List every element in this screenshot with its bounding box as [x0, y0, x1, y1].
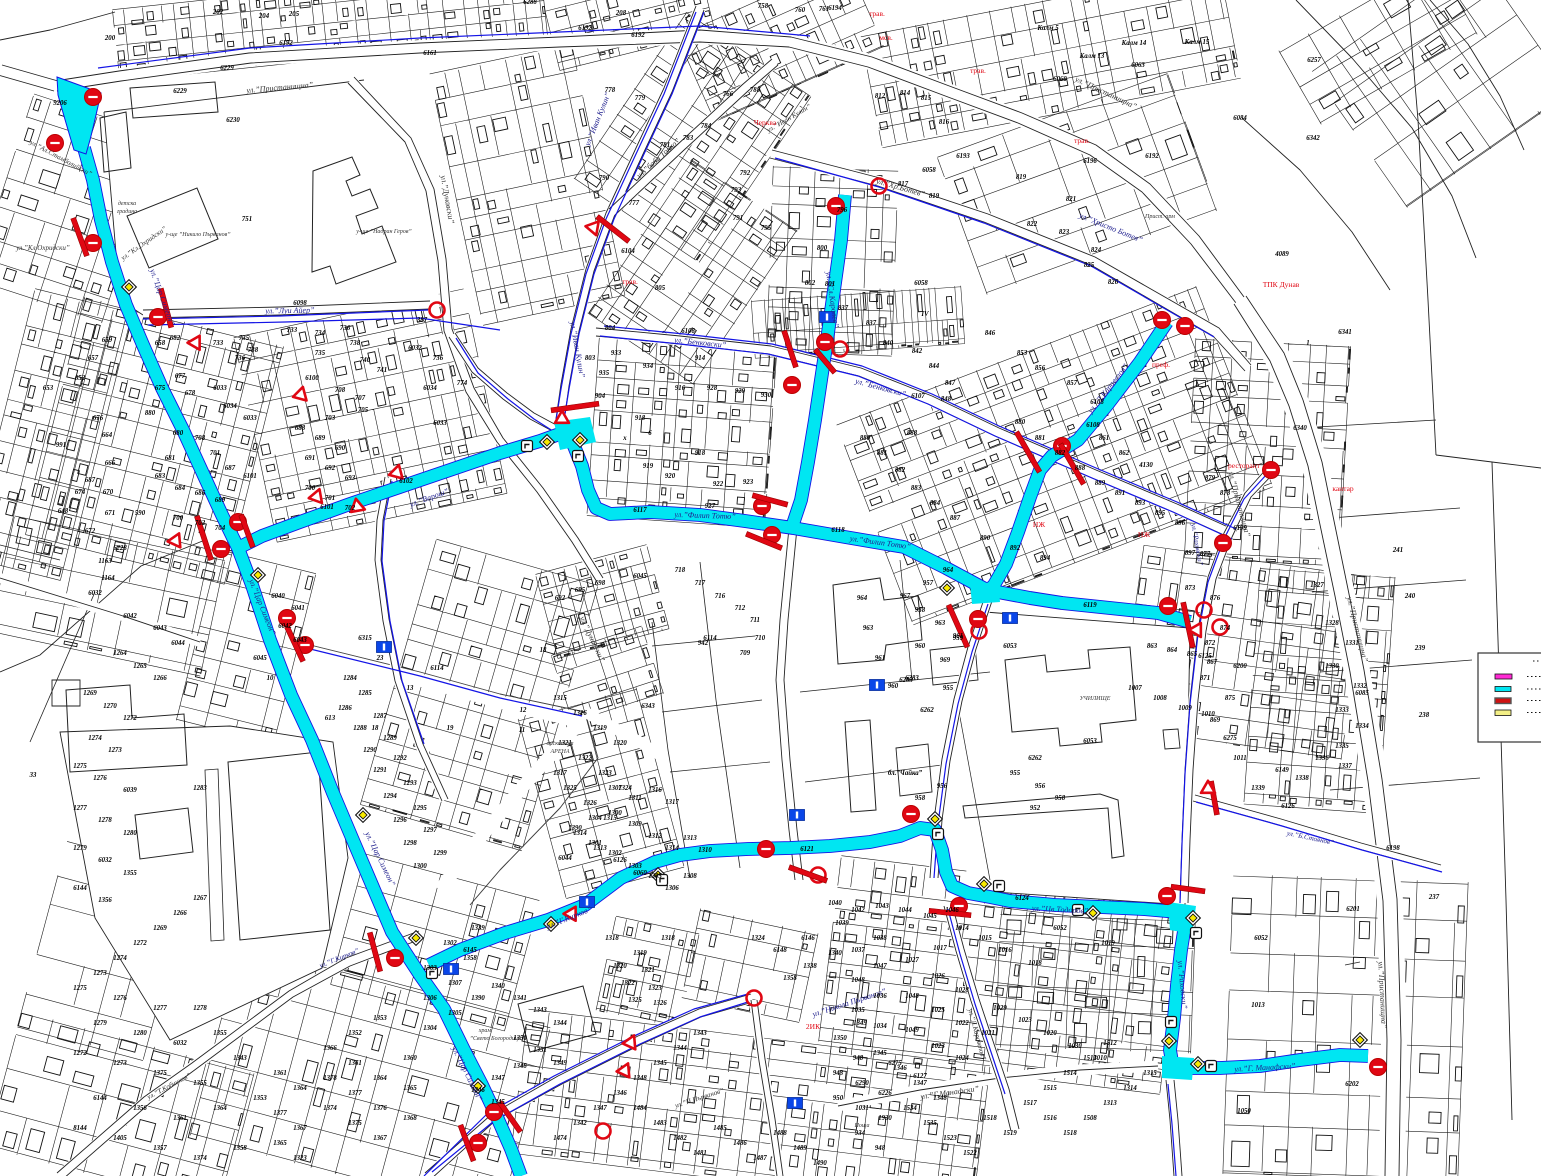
svg-text:1323: 1323 [293, 1155, 307, 1162]
svg-text:701: 701 [210, 450, 220, 457]
svg-text:x: x [622, 435, 627, 442]
svg-text:6161: 6161 [423, 50, 437, 57]
svg-text:1488: 1488 [773, 1130, 787, 1137]
svg-text:4130: 4130 [1138, 462, 1153, 469]
svg-text:671: 671 [105, 510, 115, 517]
svg-text:6343: 6343 [641, 703, 655, 710]
svg-text:1514: 1514 [1063, 1070, 1077, 1077]
svg-text:659: 659 [102, 337, 113, 344]
svg-text:1030: 1030 [1068, 1043, 1082, 1050]
svg-text:1046: 1046 [945, 907, 959, 914]
svg-text:1490: 1490 [813, 1160, 827, 1167]
svg-text:819: 819 [1016, 174, 1027, 181]
svg-text:678: 678 [185, 390, 196, 397]
svg-text:1029: 1029 [993, 1005, 1007, 1012]
svg-text:1302: 1302 [608, 850, 622, 857]
svg-text:927: 927 [705, 503, 716, 510]
svg-text:1279: 1279 [73, 845, 87, 852]
svg-text:1318: 1318 [605, 935, 619, 942]
svg-text:778: 778 [605, 87, 616, 94]
svg-text:955: 955 [1010, 770, 1021, 777]
svg-text:709: 709 [740, 650, 751, 657]
svg-text:652: 652 [75, 375, 86, 382]
svg-text:1512: 1512 [1103, 1040, 1117, 1047]
svg-text:Калм 15: Калм 15 [1184, 39, 1210, 46]
svg-text:1163: 1163 [98, 558, 112, 565]
svg-text:6342: 6342 [1306, 135, 1320, 142]
svg-text:934: 934 [643, 363, 654, 370]
svg-text:751: 751 [242, 216, 252, 223]
svg-text:710: 710 [755, 635, 766, 642]
svg-text:942: 942 [698, 640, 709, 647]
svg-text:1390: 1390 [471, 995, 485, 1002]
svg-text:894: 894 [1040, 555, 1051, 562]
svg-text:934: 934 [855, 1130, 866, 1137]
svg-text:689: 689 [315, 435, 326, 442]
svg-text:6034: 6034 [423, 385, 437, 392]
svg-text:842: 842 [912, 348, 923, 355]
svg-text:6042: 6042 [278, 623, 292, 630]
svg-text:702: 702 [345, 505, 356, 512]
svg-text:955: 955 [943, 685, 954, 692]
svg-text:6340: 6340 [1293, 425, 1307, 432]
svg-text:1291: 1291 [373, 767, 387, 774]
svg-text:1390: 1390 [568, 825, 582, 832]
svg-text:1043: 1043 [875, 903, 889, 910]
svg-text:6192: 6192 [279, 40, 293, 47]
svg-text:1306: 1306 [665, 885, 679, 892]
svg-text:6275: 6275 [1223, 735, 1237, 742]
svg-text:690: 690 [335, 445, 346, 452]
svg-text:6033: 6033 [243, 415, 257, 422]
svg-text:687: 687 [225, 465, 236, 472]
svg-text:958: 958 [915, 607, 926, 614]
svg-text:1332: 1332 [1353, 683, 1367, 690]
svg-text:1314: 1314 [665, 845, 679, 852]
svg-text:6229: 6229 [220, 65, 234, 72]
svg-text:1322: 1322 [621, 980, 635, 987]
svg-text:792: 792 [740, 170, 751, 177]
svg-text:1044: 1044 [898, 907, 912, 914]
svg-text:1323: 1323 [648, 985, 662, 992]
svg-text:683: 683 [155, 473, 166, 480]
svg-text:1305: 1305 [648, 873, 662, 880]
svg-text:1336: 1336 [1315, 755, 1329, 762]
svg-text:1375: 1375 [153, 1070, 167, 1077]
svg-text:1: 1 [1306, 340, 1309, 347]
svg-text:736: 736 [433, 355, 444, 362]
svg-text:1025: 1025 [931, 1007, 945, 1014]
svg-text:707: 707 [355, 395, 366, 402]
svg-text:1274: 1274 [88, 735, 102, 742]
svg-text:856: 856 [1035, 365, 1046, 372]
svg-text:IV: IV [920, 311, 929, 318]
svg-text:681: 681 [165, 455, 175, 462]
svg-text:658: 658 [155, 340, 166, 347]
svg-text:1535: 1535 [923, 1120, 937, 1127]
svg-text:1026: 1026 [931, 973, 945, 980]
svg-text:1301: 1301 [588, 840, 602, 847]
svg-text:960: 960 [888, 683, 899, 690]
svg-text:796: 796 [837, 207, 848, 214]
svg-text:1302: 1302 [443, 940, 457, 947]
svg-text:6341: 6341 [1338, 329, 1352, 336]
svg-text:6230: 6230 [226, 117, 240, 124]
svg-text:675: 675 [155, 385, 166, 392]
svg-text:1009: 1009 [1178, 705, 1192, 712]
svg-text:800: 800 [817, 245, 828, 252]
svg-text:889: 889 [1095, 480, 1106, 487]
svg-text:1265: 1265 [133, 663, 147, 670]
svg-text:964: 964 [943, 567, 954, 574]
svg-text:795: 795 [761, 225, 772, 232]
svg-text:387: 387 [416, 317, 428, 324]
svg-text:1031: 1031 [855, 1105, 869, 1112]
svg-text:1276: 1276 [113, 995, 127, 1002]
svg-text:890: 890 [980, 535, 991, 542]
svg-text:1326: 1326 [653, 1000, 667, 1007]
svg-text:880: 880 [1015, 419, 1026, 426]
svg-text:1292: 1292 [393, 755, 407, 762]
svg-text:676: 676 [93, 415, 104, 422]
svg-text:4089: 4089 [1274, 251, 1289, 258]
svg-text:6192: 6192 [578, 25, 592, 32]
svg-text:240: 240 [1404, 593, 1416, 600]
svg-text:823: 823 [1059, 229, 1070, 236]
svg-text:6124: 6124 [1015, 895, 1029, 902]
svg-text:815: 815 [921, 95, 932, 102]
svg-text:871: 871 [1200, 675, 1210, 682]
svg-text:758: 758 [758, 3, 769, 10]
svg-text:803: 803 [585, 355, 596, 362]
svg-text:1028: 1028 [955, 987, 969, 994]
svg-text:1374: 1374 [193, 1155, 207, 1162]
svg-text:11: 11 [519, 727, 525, 734]
svg-text:708: 708 [195, 435, 206, 442]
svg-text:872: 872 [1205, 640, 1216, 647]
svg-text:969: 969 [940, 657, 951, 664]
svg-text:1040: 1040 [828, 900, 842, 907]
svg-text:874: 874 [1220, 625, 1231, 632]
svg-text:1347: 1347 [593, 1105, 607, 1112]
svg-text:1481: 1481 [693, 1150, 707, 1157]
svg-text:1324: 1324 [751, 935, 765, 942]
svg-text:1275: 1275 [73, 763, 87, 770]
svg-text:1350: 1350 [513, 1035, 527, 1042]
svg-text:821: 821 [1066, 196, 1076, 203]
svg-text:1377: 1377 [273, 1110, 287, 1117]
svg-text:храм: храм [478, 1028, 492, 1034]
svg-text:1321: 1321 [641, 967, 655, 974]
svg-text:6033: 6033 [433, 420, 447, 427]
svg-text:18: 18 [372, 725, 379, 732]
svg-text:1277: 1277 [73, 805, 87, 812]
svg-text:1326: 1326 [583, 800, 597, 807]
svg-text:1344: 1344 [553, 1020, 567, 1027]
svg-text:1483: 1483 [653, 1120, 667, 1127]
svg-text:1365: 1365 [403, 1085, 417, 1092]
svg-text:НЖ: НЖ [1138, 530, 1150, 539]
svg-text:1322: 1322 [578, 755, 592, 762]
svg-text:826: 826 [1108, 279, 1119, 286]
svg-text:1013: 1013 [1251, 1002, 1265, 1009]
svg-text:1348: 1348 [513, 1063, 527, 1070]
svg-text:1273: 1273 [108, 747, 122, 754]
svg-text:880: 880 [860, 435, 871, 442]
svg-text:682: 682 [170, 335, 181, 342]
svg-text:684: 684 [175, 485, 186, 492]
svg-text:1036: 1036 [873, 993, 887, 1000]
svg-text:1019: 1019 [1101, 940, 1115, 947]
svg-text:718: 718 [675, 567, 686, 574]
svg-text:702: 702 [195, 520, 206, 527]
svg-text:6032: 6032 [408, 345, 422, 352]
svg-text:6101: 6101 [243, 473, 257, 480]
svg-text:837: 837 [866, 320, 877, 327]
svg-text:1350: 1350 [833, 1035, 847, 1042]
svg-text:1515: 1515 [1043, 1085, 1057, 1092]
svg-text:1311: 1311 [628, 795, 641, 802]
svg-text:734: 734 [315, 330, 326, 337]
svg-text:6262: 6262 [1028, 755, 1042, 762]
svg-text:1345: 1345 [873, 1050, 887, 1057]
svg-text:6315: 6315 [358, 635, 372, 642]
svg-text:1355: 1355 [123, 870, 137, 877]
svg-text:819: 819 [929, 193, 940, 200]
svg-text:6117: 6117 [633, 507, 647, 514]
svg-text:904: 904 [595, 393, 606, 400]
svg-text:1356: 1356 [98, 897, 112, 904]
svg-text:824: 824 [1091, 247, 1102, 254]
svg-text:812: 812 [875, 93, 886, 100]
svg-text:1357: 1357 [153, 1145, 167, 1152]
svg-text:1267: 1267 [193, 895, 207, 902]
svg-text:1297: 1297 [423, 827, 437, 834]
svg-text:892: 892 [1010, 545, 1021, 552]
svg-text:ул.”Луи Айер”: ул.”Луи Айер” [264, 306, 315, 316]
svg-text:6106: 6106 [681, 328, 695, 335]
svg-text:1368: 1368 [403, 1115, 417, 1122]
svg-text:1349: 1349 [553, 1060, 567, 1067]
svg-text:848: 848 [941, 396, 952, 403]
svg-text:916: 916 [675, 385, 686, 392]
svg-text:963: 963 [935, 620, 946, 627]
svg-text:963: 963 [863, 625, 874, 632]
svg-text:1340: 1340 [491, 983, 505, 990]
svg-text:1023: 1023 [931, 1043, 945, 1050]
svg-text:6045: 6045 [633, 573, 647, 580]
svg-text:1341: 1341 [513, 995, 527, 1002]
svg-text:трав.: трав. [1074, 136, 1090, 145]
svg-text:695: 695 [575, 587, 586, 594]
svg-text:1048: 1048 [905, 993, 919, 1000]
svg-text:943: 943 [833, 1070, 844, 1077]
svg-text:711: 711 [750, 617, 760, 624]
svg-text:трав.: трав. [869, 9, 885, 18]
svg-text:1273: 1273 [113, 1060, 127, 1067]
svg-text:АРЕНА: АРЕНА [550, 749, 570, 755]
svg-text:735: 735 [315, 350, 326, 357]
svg-text:1361: 1361 [173, 1115, 187, 1122]
svg-text:239: 239 [1414, 645, 1426, 652]
svg-text:1342: 1342 [573, 1120, 587, 1127]
svg-text:6226: 6226 [878, 1090, 892, 1097]
svg-text:1047: 1047 [873, 963, 887, 970]
svg-text:948: 948 [875, 1145, 886, 1152]
svg-text:952: 952 [1030, 805, 1041, 812]
svg-text:205: 205 [288, 11, 300, 18]
svg-text:6098: 6098 [293, 300, 307, 307]
svg-text:18: 18 [540, 647, 547, 654]
svg-text:897: 897 [1185, 550, 1196, 557]
svg-text:703: 703 [325, 415, 336, 422]
svg-text:791: 791 [733, 215, 743, 222]
svg-text:1474: 1474 [553, 1135, 567, 1142]
svg-text:1364: 1364 [213, 1105, 227, 1112]
svg-text:10: 10 [267, 675, 274, 682]
svg-text:6199: 6199 [1233, 525, 1247, 532]
svg-text:802: 802 [805, 280, 816, 287]
svg-text:1318: 1318 [661, 935, 675, 942]
svg-text:1307: 1307 [608, 785, 622, 792]
svg-text:1011: 1011 [1233, 755, 1246, 762]
svg-text:1343: 1343 [533, 1007, 547, 1014]
svg-text:ул.”Кл.Охридски”: ул.”Кл.Охридски” [15, 244, 70, 252]
svg-text:6102: 6102 [399, 478, 413, 485]
svg-text:1346: 1346 [471, 1087, 485, 1094]
svg-text:1288: 1288 [353, 725, 367, 732]
svg-text:881: 881 [1035, 435, 1045, 442]
svg-text:1327: 1327 [1310, 582, 1324, 589]
svg-text:1361: 1361 [273, 1070, 287, 1077]
svg-text:Поща: Поща [853, 1123, 869, 1129]
svg-text:1286: 1286 [338, 705, 352, 712]
svg-text:920: 920 [665, 473, 676, 480]
svg-text:1355: 1355 [213, 1030, 227, 1037]
svg-text:677: 677 [175, 373, 186, 380]
svg-text:6060: 6060 [1053, 76, 1067, 83]
svg-text:862: 862 [1119, 450, 1130, 457]
svg-text:6044: 6044 [558, 855, 572, 862]
svg-text:ТПК Дунав: ТПК Дунав [1263, 280, 1300, 289]
svg-text:1347: 1347 [491, 1075, 505, 1082]
svg-text:1300: 1300 [413, 863, 427, 870]
svg-text:1930: 1930 [878, 1115, 892, 1122]
svg-text:705: 705 [358, 407, 369, 414]
svg-text:6040: 6040 [271, 593, 285, 600]
svg-text:1299: 1299 [433, 850, 447, 857]
svg-text:793: 793 [731, 187, 742, 194]
svg-text:238: 238 [1418, 712, 1430, 719]
svg-text:9206: 9206 [53, 100, 67, 107]
svg-text:893: 893 [1135, 500, 1146, 507]
svg-text:НЖ: НЖ [1033, 520, 1045, 529]
svg-text:1375: 1375 [348, 1120, 362, 1127]
svg-text:1339: 1339 [1251, 785, 1265, 792]
svg-text:1290: 1290 [363, 747, 377, 754]
svg-text:693: 693 [345, 475, 356, 482]
svg-text:864: 864 [1167, 647, 1178, 654]
svg-text:6: 6 [648, 430, 652, 437]
svg-text:1348: 1348 [633, 1075, 647, 1082]
svg-text:1365: 1365 [273, 1140, 287, 1147]
svg-text:738: 738 [248, 347, 259, 354]
svg-text:733: 733 [213, 340, 224, 347]
svg-text:6058: 6058 [922, 167, 936, 174]
svg-text:736: 736 [340, 325, 351, 332]
svg-text:кантар: кантар [1332, 484, 1354, 493]
svg-text:19: 19 [447, 725, 454, 732]
svg-text:1325: 1325 [628, 997, 642, 1004]
svg-text:Калм 5: Калм 5 [1036, 25, 1059, 32]
svg-text:700: 700 [173, 515, 184, 522]
svg-text:1307: 1307 [448, 980, 462, 987]
svg-text:846: 846 [985, 330, 996, 337]
svg-text:6290: 6290 [855, 1080, 869, 1087]
svg-text:1010: 1010 [1201, 711, 1215, 718]
svg-text:613: 613 [325, 715, 336, 722]
svg-text:1323: 1323 [598, 770, 612, 777]
svg-text:1276: 1276 [93, 775, 107, 782]
svg-text:6196: 6196 [1083, 158, 1097, 165]
svg-text:1485: 1485 [713, 1125, 727, 1132]
svg-text:801: 801 [825, 281, 835, 288]
svg-text:6107: 6107 [911, 393, 925, 400]
svg-text:680: 680 [173, 430, 184, 437]
svg-text:6032: 6032 [173, 1040, 187, 1047]
svg-text:6108: 6108 [1090, 399, 1104, 406]
svg-text:919: 919 [643, 463, 654, 470]
svg-text:1039: 1039 [835, 920, 849, 927]
svg-text:1272: 1272 [133, 940, 147, 947]
svg-text:1296: 1296 [393, 817, 407, 824]
svg-text:1339: 1339 [471, 925, 485, 932]
svg-text:950: 950 [833, 1095, 844, 1102]
svg-text:879: 879 [1205, 475, 1216, 482]
svg-text:6084: 6084 [1233, 115, 1247, 122]
svg-text:804: 804 [605, 325, 616, 332]
svg-text:6045: 6045 [253, 655, 267, 662]
svg-text:1266: 1266 [173, 910, 187, 917]
svg-text:961: 961 [953, 633, 963, 640]
svg-text:6052: 6052 [1053, 925, 1067, 932]
svg-text:741: 741 [377, 367, 387, 374]
svg-text:1312: 1312 [648, 833, 662, 840]
svg-text:градина: градина [117, 208, 137, 215]
svg-text:766: 766 [723, 91, 734, 98]
svg-text:736: 736 [235, 355, 246, 362]
svg-text:1356: 1356 [133, 1105, 147, 1112]
svg-text:6085: 6085 [1355, 690, 1369, 697]
svg-text:933: 933 [611, 350, 622, 357]
svg-text:1022: 1022 [955, 1020, 969, 1027]
svg-text:961: 961 [875, 655, 885, 662]
svg-text:6194: 6194 [828, 5, 842, 12]
svg-text:6202: 6202 [1345, 1081, 1359, 1088]
svg-text:200: 200 [104, 35, 116, 42]
svg-text:1008: 1008 [1153, 695, 1167, 702]
svg-text:958: 958 [915, 795, 926, 802]
svg-text:1309: 1309 [628, 821, 642, 828]
svg-text:Калм 13: Калм 13 [1079, 53, 1105, 60]
svg-text:1272: 1272 [123, 715, 137, 722]
svg-text:6043: 6043 [153, 625, 167, 632]
svg-text:6127: 6127 [913, 1073, 927, 1080]
svg-text:6144: 6144 [73, 885, 87, 892]
svg-text:896: 896 [1175, 520, 1186, 527]
svg-text:1298: 1298 [403, 840, 417, 847]
svg-text:6145: 6145 [463, 947, 477, 954]
